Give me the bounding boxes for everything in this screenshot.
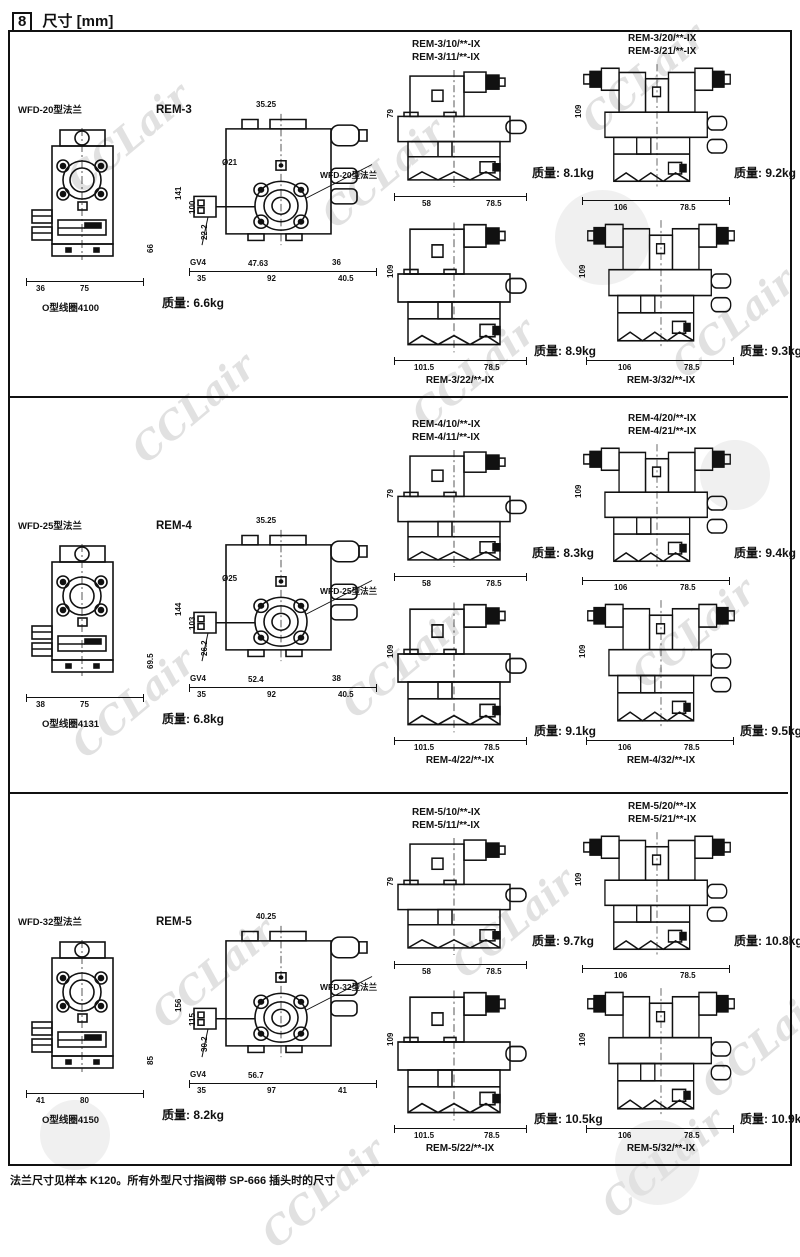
variant-label: REM-5/20/**-IX [628,800,696,813]
variant-cell-32: 109 106 78.5 质量: 10.9kg REM-5/32/**-IX [574,980,790,1164]
dim-w2: 78.5 [486,199,502,208]
flange-type-label: WFD-32型法兰 [18,914,82,928]
variant-cell-32: 109 106 78.5 质量: 9.5kg REM-4/32/**-IX [574,592,790,776]
variant-label: REM-3/22/**-IX [390,374,530,387]
dim-bottom-1: 35 [197,274,206,283]
dim-w2: 78.5 [484,363,500,372]
left-column: WFD-20型法兰 36 75 66 O型线圈4100 REM-3 35.25 … [14,88,386,328]
weight-text: 质量: 9.2kg [734,164,796,181]
side-view-drawing [186,112,376,262]
variant-label: REM-3/20/**-IX [628,32,696,45]
dim-w1: 106 [618,363,631,372]
variant-cell-22: 109 101.5 78.5 质量: 9.1kg REM-4/22/**-IX [386,592,586,776]
dim-overall-height: 156 [174,999,183,1012]
side-view-drawing [186,924,376,1074]
variant-cell-10: REM-4/10/**-IX REM-4/11/**-IX 79 58 78.5… [390,416,590,594]
dim-bore: Ø25 [222,574,237,583]
flange-type-label: WFD-20型法兰 [18,102,82,116]
flange-callout-label: WFD-20型法兰 [320,170,394,180]
dim-w2: 78.5 [684,363,700,372]
dim-w2: 78.5 [486,579,502,588]
variant-labels: REM-4/10/**-IX REM-4/11/**-IX [412,418,480,444]
dim-w1: 101.5 [414,743,434,752]
dimension-line [189,687,377,688]
dim-w1: 106 [614,971,627,980]
dim-height: 79 [386,109,395,118]
dim-flange-width: 80 [80,1096,89,1105]
dimension-line [394,196,527,197]
variant-label: REM-3/10/**-IX [412,38,480,51]
dim-height: 79 [386,877,395,886]
variant-label: REM-4/22/**-IX [390,754,530,767]
weight-text: 质量: 9.4kg [734,544,796,561]
variant-labels: REM-4/20/**-IX REM-4/21/**-IX [628,412,696,438]
section-2: WFD-25型法兰 38 75 69.5 O型线圈4131 REM-4 35.2… [8,412,790,778]
variant-cell-10: REM-5/10/**-IX REM-5/11/**-IX 79 58 78.5… [390,804,590,982]
variant-cell-32: 109 106 78.5 质量: 9.3kg REM-3/32/**-IX [574,212,790,396]
dim-w2: 78.5 [484,1131,500,1140]
dimension-line [582,968,730,969]
valve-drawing-single-solenoid-tall [394,218,529,358]
valve-drawing-double-solenoid-tall [586,598,736,738]
valve-drawing-single-solenoid-tall [394,598,529,738]
weight-text: 质量: 9.5kg [740,722,800,739]
weight-text: 质量: 6.6kg [162,294,224,311]
dim-height: 109 [386,645,395,658]
coil-note: O型线圈4150 [42,1112,99,1126]
variant-label: REM-5/11/**-IX [412,819,480,832]
dim-bottom-1: 35 [197,1086,206,1095]
dim-left-small: 30.2 [200,1036,209,1052]
valve-drawing-double-solenoid [582,62,732,198]
valve-drawing-double-solenoid-tall [586,986,736,1126]
variant-labels: REM-3/10/**-IX REM-3/11/**-IX [412,38,480,64]
dimension-line [586,1128,734,1129]
port-label: GV4 [190,258,206,267]
flange-front-view-drawing [30,940,135,1090]
dim-w1: 58 [422,967,431,976]
dim-bore: Ø21 [222,158,237,167]
variant-label: REM-3/11/**-IX [412,51,480,64]
dim-bottom-3: 41 [338,1086,347,1095]
variant-label: REM-4/32/**-IX [586,754,736,767]
port-label: GV4 [190,1070,206,1079]
dim-flange-width: 75 [80,284,89,293]
dim-left-small: 22.2 [200,224,209,240]
dim-w1: 106 [614,583,627,592]
dimension-line [26,1093,144,1094]
dim-bolt-spacing: 47.63 [248,259,268,268]
dimension-line [582,580,730,581]
dim-w1: 58 [422,579,431,588]
variant-label: REM-5/22/**-IX [390,1142,530,1155]
variant-labels: REM-5/20/**-IX REM-5/21/**-IX [628,800,696,826]
weight-text: 质量: 6.8kg [162,710,224,727]
dim-flange-height: 66 [146,244,155,253]
weight-text: 质量: 9.3kg [740,342,800,359]
dim-left-small: 26.2 [200,640,209,656]
dim-bottom-3: 40.5 [338,690,354,699]
left-column: WFD-25型法兰 38 75 69.5 O型线圈4131 REM-4 35.2… [14,504,386,744]
dim-flange-height: 85 [146,1056,155,1065]
dim-w2: 78.5 [684,1131,700,1140]
dim-height: 109 [386,265,395,278]
dim-flange-left: 38 [36,700,45,709]
left-column: WFD-32型法兰 41 80 85 O型线圈4150 REM-5 40.25 … [14,900,386,1140]
port-label: GV4 [190,674,206,683]
dimension-line [26,281,144,282]
variant-cell-20: REM-3/20/**-IX REM-3/21/**-IX 109 106 78… [574,32,790,214]
dim-inner-height: 103 [188,617,197,630]
variant-labels: REM-5/10/**-IX REM-5/11/**-IX [412,806,480,832]
dim-height: 109 [574,485,583,498]
variant-label: REM-3/32/**-IX [586,374,736,387]
dim-bottom-2: 97 [267,1086,276,1095]
dim-w2: 78.5 [684,743,700,752]
dim-right-small: 36 [332,258,341,267]
dim-top-width: 35.25 [256,516,276,525]
valve-drawing-single-solenoid [394,66,529,192]
dim-inner-height: 115 [188,1013,197,1026]
variant-label: REM-4/21/**-IX [628,425,696,438]
dim-top-width: 40.25 [256,912,276,921]
weight-text: 质量: 10.8kg [734,932,800,949]
valve-drawing-single-solenoid-tall [394,986,529,1126]
dimension-line [394,740,527,741]
dim-w2: 78.5 [486,967,502,976]
dimension-line [586,360,734,361]
dim-flange-width: 75 [80,700,89,709]
dim-bottom-2: 92 [267,690,276,699]
dim-bottom-1: 35 [197,690,206,699]
dim-w1: 101.5 [414,1131,434,1140]
dim-bottom-2: 92 [267,274,276,283]
dim-w1: 58 [422,199,431,208]
dimension-line [394,1128,527,1129]
dimension-line [189,1083,377,1084]
coil-note: O型线圈4131 [42,716,99,730]
dim-w2: 78.5 [680,583,696,592]
dimension-line [586,740,734,741]
flange-callout-label: WFD-25型法兰 [320,586,394,596]
variant-label: REM-5/10/**-IX [412,806,480,819]
variant-cell-10: REM-3/10/**-IX REM-3/11/**-IX 79 58 78.5… [390,36,590,214]
dim-bolt-spacing: 52.4 [248,675,264,684]
dim-height: 109 [578,1033,587,1046]
dimension-line [394,964,527,965]
dim-w1: 106 [618,1131,631,1140]
coil-note: O型线圈4100 [42,300,99,314]
dim-bolt-spacing: 56.7 [248,1071,264,1080]
variant-label: REM-4/20/**-IX [628,412,696,425]
dim-flange-left: 41 [36,1096,45,1105]
dim-w2: 78.5 [484,743,500,752]
side-view-drawing [186,528,376,678]
dim-w1: 101.5 [414,363,434,372]
dim-overall-height: 141 [174,187,183,200]
dim-overall-height: 144 [174,603,183,616]
flange-callout-label: WFD-32型法兰 [320,982,394,992]
dim-height: 109 [386,1033,395,1046]
dimension-line [26,697,144,698]
variant-cell-22: 109 101.5 78.5 质量: 10.5kg REM-5/22/**-IX [386,980,586,1164]
variant-label: REM-5/21/**-IX [628,813,696,826]
dim-height: 109 [574,105,583,118]
variant-label: REM-3/21/**-IX [628,45,696,58]
dimension-line [582,200,730,201]
weight-text: 质量: 10.9kg [740,1110,800,1127]
dimension-line [394,360,527,361]
dim-flange-left: 36 [36,284,45,293]
dim-height: 109 [578,645,587,658]
dim-inner-height: 100 [188,201,197,214]
dimension-line [394,576,527,577]
dim-height: 79 [386,489,395,498]
section-3: WFD-32型法兰 41 80 85 O型线圈4150 REM-5 40.25 … [8,800,790,1166]
variant-cell-22: 109 101.5 78.5 质量: 8.9kg REM-3/22/**-IX [386,212,586,396]
variant-label: REM-4/11/**-IX [412,431,480,444]
dim-height: 109 [578,265,587,278]
section-1: WFD-20型法兰 36 75 66 O型线圈4100 REM-3 35.25 … [8,32,790,398]
variant-labels: REM-3/20/**-IX REM-3/21/**-IX [628,32,696,58]
dim-w1: 106 [614,203,627,212]
valve-drawing-single-solenoid [394,446,529,572]
valve-drawing-single-solenoid [394,834,529,960]
dim-flange-height: 69.5 [146,653,155,669]
variant-label: REM-5/32/**-IX [586,1142,736,1155]
footer-note: 法兰尺寸见样本 K120。所有外型尺寸指阀带 SP-666 插头时的尺寸 [10,1172,335,1188]
dim-top-width: 35.25 [256,100,276,109]
dimension-line [189,271,377,272]
dim-w2: 78.5 [680,971,696,980]
flange-type-label: WFD-25型法兰 [18,518,82,532]
dim-w2: 78.5 [680,203,696,212]
dim-height: 109 [574,873,583,886]
weight-text: 质量: 8.2kg [162,1106,224,1123]
flange-front-view-drawing [30,128,135,278]
sections-container: WFD-20型法兰 36 75 66 O型线圈4100 REM-3 35.25 … [0,0,800,1204]
valve-drawing-double-solenoid-tall [586,218,736,358]
valve-drawing-double-solenoid [582,442,732,578]
dim-right-small: 38 [332,674,341,683]
variant-label: REM-4/10/**-IX [412,418,480,431]
variant-cell-20: REM-4/20/**-IX REM-4/21/**-IX 109 106 78… [574,412,790,594]
dim-w1: 106 [618,743,631,752]
flange-front-view-drawing [30,544,135,694]
variant-cell-20: REM-5/20/**-IX REM-5/21/**-IX 109 106 78… [574,800,790,982]
dim-bottom-3: 40.5 [338,274,354,283]
valve-drawing-double-solenoid [582,830,732,966]
